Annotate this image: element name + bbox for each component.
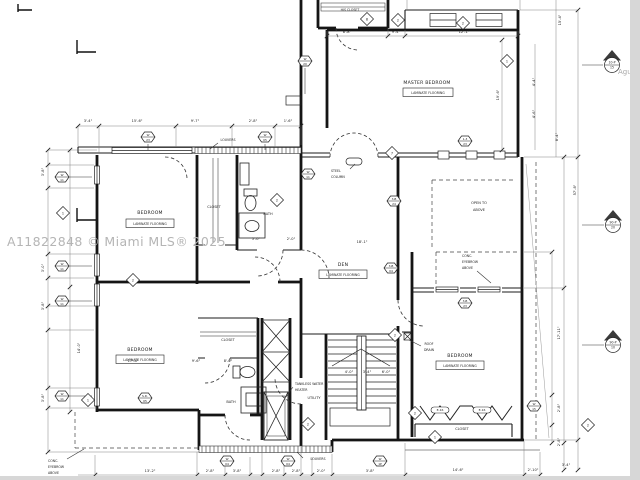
svg-text:12'-1": 12'-1" [459,30,470,34]
svg-text:2'-8": 2'-8" [557,403,561,412]
dimension-label: 14'-0" [77,342,81,353]
flooring-label: LAMINATE FLOORING [411,91,445,95]
svg-text:3-B: 3-B [389,264,394,268]
dimension-label: 3'-8" [41,167,45,176]
window-marker: W11 [55,172,69,182]
svg-text:W: W [61,173,64,177]
svg-text:19'-6": 19'-6" [496,89,500,100]
svg-text:4'-6": 4'-6" [532,109,536,118]
svg-text:11: 11 [60,397,64,401]
svg-text:10: 10 [611,346,615,350]
svg-text:3'-4": 3'-4" [84,119,93,123]
svg-text:W: W [264,133,267,137]
note-roof-drain-2: DRAIN [424,348,435,352]
window-marker: W11 [55,261,69,271]
dimension-label: 3'-8" [41,393,45,402]
dimension-label: 19'-6" [496,89,500,100]
svg-text:1: 1 [87,398,89,402]
dimension-label: 9'-4" [392,30,401,34]
dimension-label: 8'-4" [555,132,559,141]
room-label-bath-sw: BATH [226,400,236,404]
svg-text:2'-8": 2'-8" [249,119,258,123]
dimension-label: 14'-6" [453,468,464,472]
dimension-label: 4'-4" [532,77,536,86]
note-tankless-heater-2: HEATER [295,388,308,392]
svg-text:2'-0": 2'-0" [317,469,326,473]
svg-text:2'-8": 2'-8" [206,469,215,473]
room-label-closet-se: CLOSET [455,427,469,431]
dimension-label: 8'-8" [343,30,352,34]
dimension-label: 2'-8" [272,469,281,473]
svg-text:8'-4": 8'-4" [555,132,559,141]
svg-text:9'-6": 9'-6" [192,359,201,363]
dimension-label: 3'-0" [41,263,45,272]
dimension-label: 2'-8" [249,119,258,123]
closet-tag: E-16 [473,407,491,413]
svg-text:04: 04 [225,462,229,466]
svg-text:9'-4": 9'-4" [392,30,401,34]
svg-text:11: 11 [60,302,64,306]
dimension-label: 3'-8" [366,469,375,473]
svg-text:1P: 1P [378,462,382,466]
window-marker: W15 [527,401,541,411]
svg-text:S.D.: S.D. [142,394,148,398]
room-label-open-to-above-2: ABOVE [473,208,485,212]
svg-text:90-P: 90-P [610,221,617,225]
svg-text:2'-8": 2'-8" [272,469,281,473]
svg-text:W: W [61,392,64,396]
floor-plan-page: 3'-4"15'-6"9'-7"2'-8"1'-6"8'-8"9'-4"12'-… [0,0,640,480]
svg-text:3'-4": 3'-4" [562,463,571,467]
flooring-label: LAMINATE FLOORING [133,222,167,226]
svg-text:57'-8": 57'-8" [573,184,577,195]
dimension-label: 2'-8" [557,437,561,446]
window-marker: W11 [301,169,315,179]
room-label-utility: UTILITY [308,396,322,400]
window-marker: 3-B24 [387,196,401,206]
svg-text:2'-8": 2'-8" [292,469,301,473]
svg-text:E-16: E-16 [479,408,486,412]
note-eyebrow-right: CONC. [462,254,472,258]
svg-text:W: W [147,133,150,137]
svg-text:5'-0": 5'-0" [252,237,261,241]
svg-text:3'-4": 3'-4" [363,370,372,374]
room-label-open-to-above: OPEN TO [471,201,487,205]
room-label-den: DEN [338,262,348,268]
closet-tag: E-16 [431,407,449,413]
svg-text:W: W [61,297,64,301]
svg-text:15: 15 [610,66,614,70]
svg-text:W: W [226,457,229,461]
watermark: A11822848 © Miami MLS® 2025 [7,234,226,249]
svg-text:24: 24 [392,202,396,206]
dimension-label: 18'-1" [357,240,368,244]
svg-text:3'-8": 3'-8" [41,167,45,176]
scan-edge-bottom [0,476,640,480]
svg-text:04: 04 [286,462,290,466]
svg-text:1: 1 [506,59,508,63]
svg-text:3'-8": 3'-8" [41,393,45,402]
dimension-label: 2'-8" [292,469,301,473]
svg-text:15: 15 [532,407,536,411]
svg-text:11: 11 [306,175,310,179]
svg-text:8: 8 [366,17,368,21]
svg-text:23: 23 [463,304,467,308]
svg-text:90-P: 90-P [610,341,617,345]
svg-text:05: 05 [263,138,267,142]
svg-text:W: W [533,402,536,406]
dimension-label: 15'-4" [558,14,562,25]
svg-text:1: 1 [434,435,436,439]
svg-text:3-B: 3-B [392,197,397,201]
svg-text:8'-8": 8'-8" [343,30,352,34]
dimension-label: 13'-2" [145,469,156,473]
room-label-closet-nw: CLOSET [207,205,221,209]
room-label-closet-sw: CLOSET [221,338,235,342]
window-marker: 1-323 [458,136,472,146]
dimension-label: 2'-8" [557,403,561,412]
dimension-label: 57'-8" [573,184,577,195]
note-roof-drain: ROOF [424,342,433,346]
svg-text:3-B: 3-B [463,299,468,303]
dimension-label: 1'-6" [284,119,293,123]
svg-text:20: 20 [303,62,307,66]
svg-text:1-3: 1-3 [463,137,468,141]
dimension-label: 2'-10" [528,468,539,472]
dimension-label: 3'-4" [84,119,93,123]
svg-text:1'-6": 1'-6" [284,119,293,123]
dimension-label: 9'-6" [192,359,201,363]
note-eyebrow-right-3: ABOVE [462,266,473,270]
svg-text:4'-0": 4'-0" [345,370,354,374]
svg-text:1: 1 [62,211,64,215]
dimension-label: 5'-0" [252,237,261,241]
svg-text:W: W [304,57,307,61]
room-label-bedroom-se: BEDROOM [447,353,472,359]
window-marker: W20 [298,56,312,66]
svg-text:4'-4": 4'-4" [532,77,536,86]
window-marker: 3-B23 [458,298,472,308]
window-marker: 3-B04 [384,263,398,273]
note-steel-column: STEEL [331,169,341,173]
svg-text:2: 2 [587,423,589,427]
room-label-master-bedroom: MASTER BEDROOM [403,80,450,86]
window-marker: W23 [141,132,155,142]
floor-plan-svg: 3'-4"15'-6"9'-7"2'-8"1'-6"8'-8"9'-4"12'-… [0,0,640,480]
dimension-label: 17'-11" [557,326,561,339]
window-marker: W1P [373,456,387,466]
svg-text:2'-10": 2'-10" [528,468,539,472]
note-louvers-bottom: LOUVERS [311,457,326,461]
svg-text:9'-7": 9'-7" [191,119,200,123]
svg-text:23: 23 [463,142,467,146]
room-label-bedroom-nw: BEDROOM [137,210,162,216]
svg-text:05: 05 [143,399,147,403]
svg-text:2: 2 [276,198,278,202]
dimension-label: 2'-8" [206,469,215,473]
svg-text:6'-0": 6'-0" [382,370,391,374]
svg-text:2'-8": 2'-8" [557,437,561,446]
svg-text:8'-0": 8'-0" [224,359,233,363]
window-marker: W05 [258,132,272,142]
svg-text:2'-0": 2'-0" [287,237,296,241]
svg-text:20: 20 [611,226,615,230]
window-marker: W11 [55,296,69,306]
svg-text:3'-8": 3'-8" [41,301,45,310]
svg-text:2: 2 [397,18,399,22]
flooring-label: LAMINATE FLOORING [123,358,157,362]
dimension-label: 6'-0" [382,370,391,374]
dimension-label: 9'-7" [191,119,200,123]
svg-text:04: 04 [389,269,393,273]
svg-text:14'-6": 14'-6" [453,468,464,472]
note-eyebrow-right-2: EYEBROW [462,260,479,264]
dimension-label: 4'-6" [532,109,536,118]
svg-text:3'-8": 3'-8" [233,469,242,473]
svg-text:3'-8": 3'-8" [366,469,375,473]
dimension-label: 2'-0" [317,469,326,473]
dimension-label: 3'-8" [233,469,242,473]
svg-text:23: 23 [146,138,150,142]
dimension-label: 12'-1" [459,30,470,34]
svg-text:2: 2 [132,278,134,282]
svg-text:2: 2 [462,21,464,25]
svg-text:11: 11 [60,267,64,271]
svg-text:13'-2": 13'-2" [145,469,156,473]
window-marker: S.D.05 [138,393,152,403]
svg-text:E-16: E-16 [437,408,444,412]
note-tankless-heater: TANKLESS WATER [294,382,324,386]
svg-text:3'-0": 3'-0" [41,263,45,272]
flooring-label: LAMINATE FLOORING [443,364,477,368]
note-eyebrow-left-3: ABOVE [48,471,59,475]
window-marker: W11 [55,391,69,401]
note-eyebrow-left-2: EYEBROW [48,465,65,469]
note-steel-column-2: COLUMN [331,175,345,179]
room-label-bedroom-sw: BEDROOM [127,347,152,353]
window-marker: W04 [220,456,234,466]
svg-text:14'-0": 14'-0" [77,342,81,353]
svg-text:15'-6": 15'-6" [132,119,143,123]
dimension-label: 3'-8" [41,301,45,310]
dimension-label: 4'-0" [345,370,354,374]
flooring-label: LAMINATE FLOORING [326,273,360,277]
watermark-partial: Agu [618,68,632,76]
window-marker: W04 [281,456,295,466]
dimension-label: 8'-0" [224,359,233,363]
svg-text:W: W [287,457,290,461]
dimension-label: 3'-4" [562,463,571,467]
scan-edge-right [630,0,640,480]
note-louvers-top: LOUVERS [221,138,236,142]
svg-text:11: 11 [60,178,64,182]
svg-text:2: 2 [307,422,309,426]
svg-text:W: W [61,262,64,266]
dimension-label: 3'-4" [363,370,372,374]
svg-text:7: 7 [391,151,393,155]
dimension-label: 2'-0" [287,237,296,241]
svg-text:18'-1": 18'-1" [357,240,368,244]
dimension-label: 15'-6" [132,119,143,123]
svg-text:17'-11": 17'-11" [557,326,561,339]
svg-text:2: 2 [394,333,396,337]
room-label-bath-nw: BATH [263,212,273,216]
svg-text:15'-4": 15'-4" [558,14,562,25]
svg-text:W: W [379,457,382,461]
svg-text:10-P: 10-P [609,61,616,65]
svg-text:W: W [307,170,310,174]
note-eyebrow-left: CONC. [48,459,58,463]
svg-text:2: 2 [414,411,416,415]
room-label-his-closet: HIS CLOSET [341,8,360,12]
